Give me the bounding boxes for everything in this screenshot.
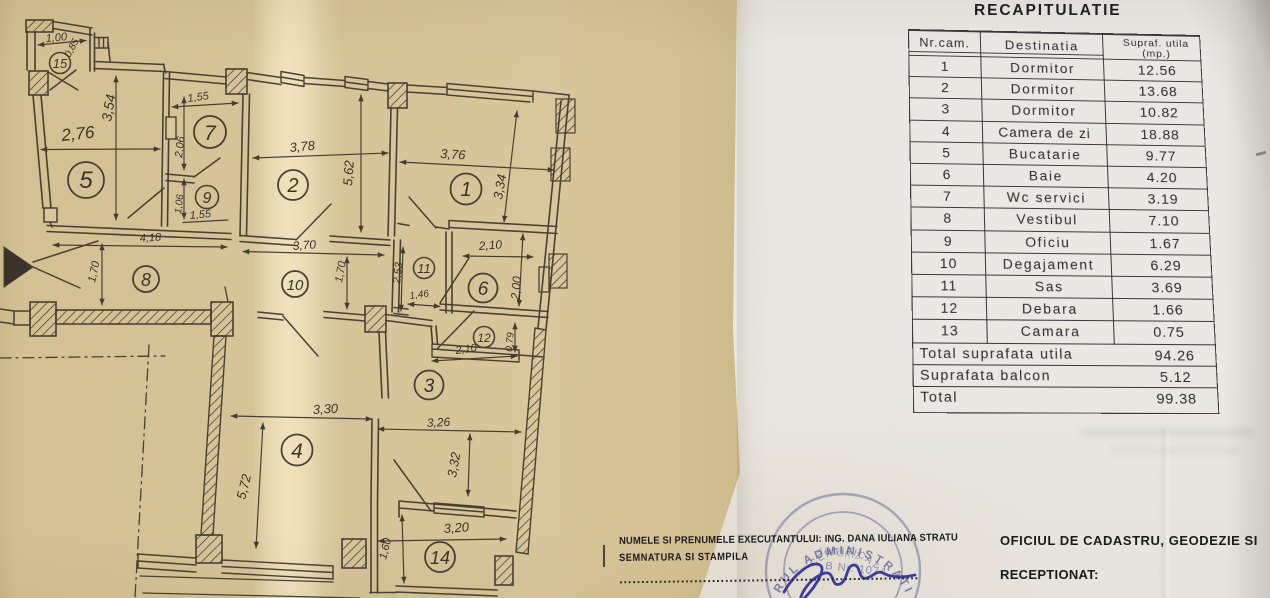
svg-text:11: 11 — [417, 261, 431, 276]
svg-text:2,00: 2,00 — [508, 275, 524, 301]
svg-text:5,62: 5,62 — [340, 159, 357, 186]
svg-text:5: 5 — [79, 167, 93, 194]
svg-text:9: 9 — [203, 190, 212, 207]
svg-text:2,76: 2,76 — [59, 123, 95, 146]
svg-text:1,60: 1,60 — [377, 536, 394, 561]
svg-text:15: 15 — [53, 56, 68, 71]
svg-text:3,30: 3,30 — [312, 401, 339, 417]
svg-text:2: 2 — [286, 175, 298, 197]
svg-text:2,10: 2,10 — [477, 237, 503, 253]
svg-text:3,78: 3,78 — [289, 138, 316, 155]
svg-text:7: 7 — [204, 122, 217, 145]
svg-text:3: 3 — [424, 376, 435, 397]
svg-text:3,70: 3,70 — [292, 237, 317, 253]
svg-text:3,32: 3,32 — [444, 450, 463, 478]
svg-text:3,20: 3,20 — [443, 519, 470, 536]
svg-text:14: 14 — [430, 548, 450, 568]
svg-text:1,55: 1,55 — [189, 208, 212, 222]
svg-text:1,55: 1,55 — [187, 90, 211, 105]
svg-text:12: 12 — [477, 331, 491, 345]
svg-text:0,79: 0,79 — [504, 331, 517, 352]
svg-text:2,53: 2,53 — [391, 261, 406, 286]
svg-text:1,00: 1,00 — [45, 31, 68, 45]
svg-text:10: 10 — [287, 277, 304, 294]
svg-text:3,76: 3,76 — [440, 146, 467, 162]
svg-text:1: 1 — [460, 179, 471, 201]
svg-text:2,06: 2,06 — [173, 135, 188, 160]
svg-text:1,46: 1,46 — [409, 288, 430, 302]
svg-text:1,70: 1,70 — [86, 259, 102, 283]
svg-text:6: 6 — [478, 279, 489, 300]
svg-text:5,72: 5,72 — [233, 472, 254, 501]
svg-text:8: 8 — [141, 270, 151, 290]
svg-text:4,18: 4,18 — [139, 231, 162, 245]
svg-text:3,26: 3,26 — [426, 415, 450, 430]
svg-text:2,10: 2,10 — [454, 342, 479, 357]
svg-text:4: 4 — [291, 440, 303, 463]
